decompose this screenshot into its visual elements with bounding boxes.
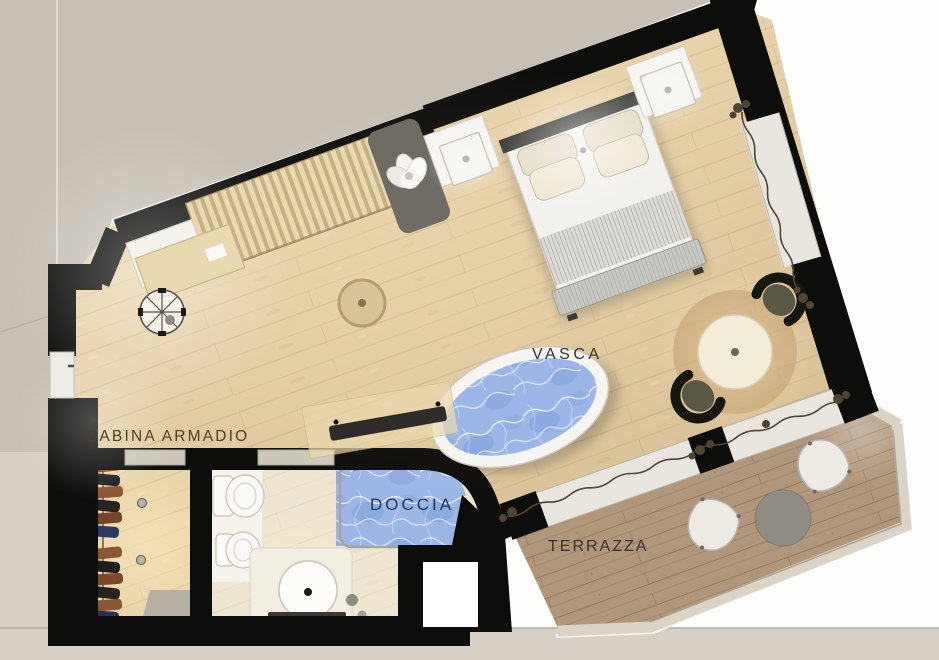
floor-plan-drawing xyxy=(0,0,939,660)
toilet xyxy=(213,475,264,517)
floor-plan: CABINA ARMADIO VASCA DOCCIA TERRAZZA xyxy=(0,0,939,660)
closet-door-knob xyxy=(137,556,146,565)
bathroom-accessory xyxy=(346,594,358,606)
round-pouf xyxy=(335,276,389,330)
nightstand-light xyxy=(628,52,708,132)
service-shaft xyxy=(423,562,478,627)
closet-door-knob xyxy=(138,499,147,508)
sink-drain xyxy=(304,588,312,596)
nightstand-light xyxy=(426,120,506,200)
dining-table-center xyxy=(731,348,739,356)
wall-closet-divider xyxy=(190,452,212,632)
entry-light xyxy=(15,340,175,500)
